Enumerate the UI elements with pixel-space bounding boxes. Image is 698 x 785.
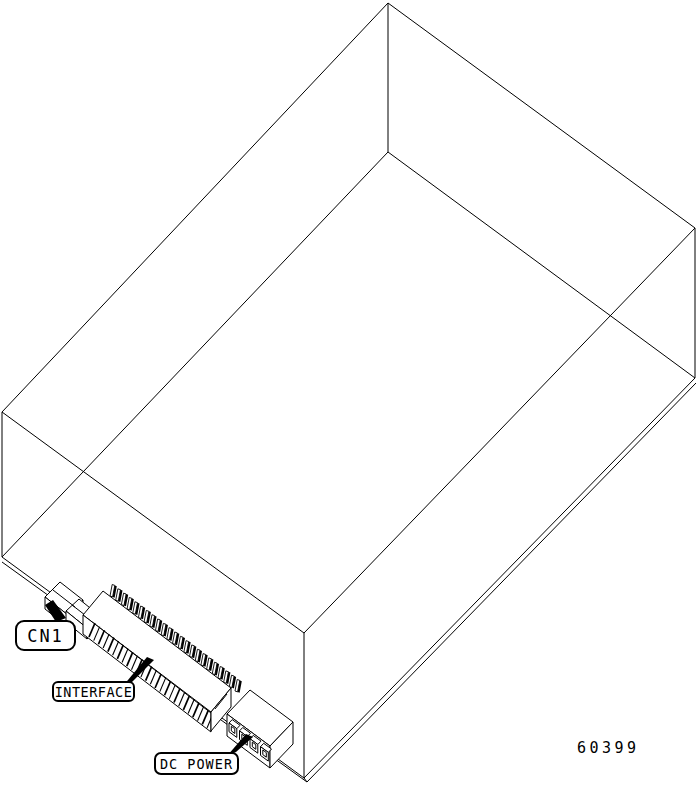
label-dc-power: DC POWER — [154, 752, 239, 775]
label-interface-text: INTERFACE — [55, 684, 133, 700]
diagram-canvas: CN1 INTERFACE DC POWER 60399 — [0, 0, 698, 785]
label-cn1: CN1 — [15, 620, 76, 651]
chassis-wireframe — [2, 3, 696, 782]
part-number-text: 60399 — [577, 739, 640, 757]
chassis-edges — [2, 3, 695, 778]
label-interface: INTERFACE — [52, 681, 135, 702]
isometric-drawing — [0, 0, 698, 785]
label-dc-power-text: DC POWER — [160, 756, 233, 772]
label-cn1-text: CN1 — [27, 626, 64, 646]
interface-edge-connector — [83, 585, 242, 733]
bottom-rim-edges — [2, 378, 696, 782]
